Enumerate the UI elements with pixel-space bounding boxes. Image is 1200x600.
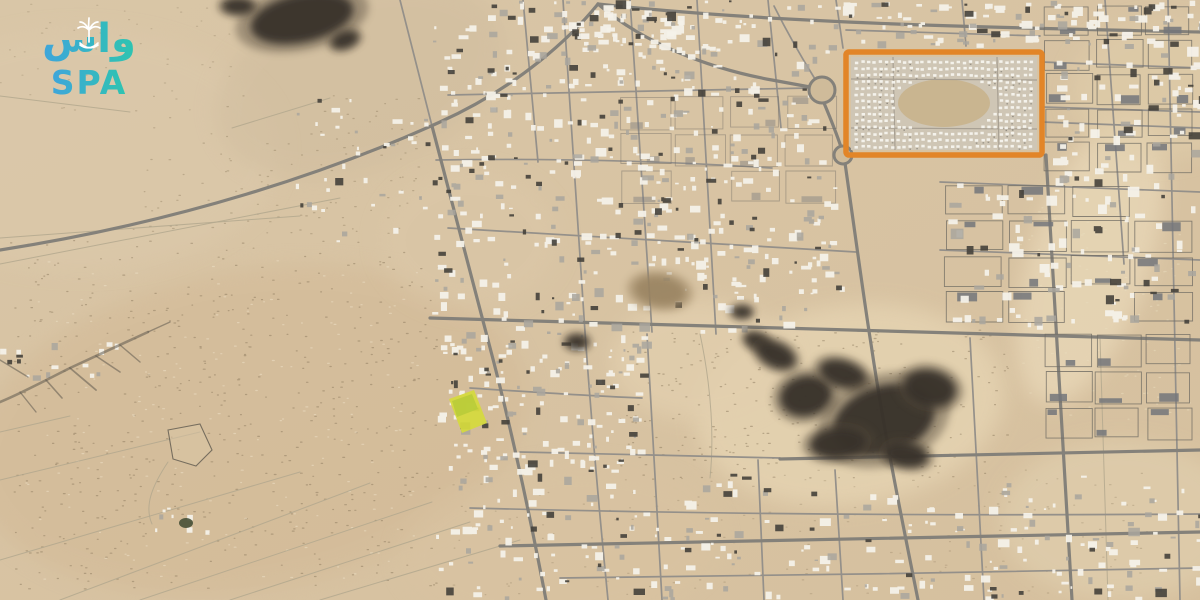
- roundabout: [809, 77, 835, 103]
- compound-central-yard: [898, 79, 990, 127]
- satellite-map: واس SPA: [0, 0, 1200, 600]
- housing-compound: [851, 57, 1037, 150]
- tree-clump: [179, 518, 193, 528]
- satellite-imagery: [0, 0, 1200, 600]
